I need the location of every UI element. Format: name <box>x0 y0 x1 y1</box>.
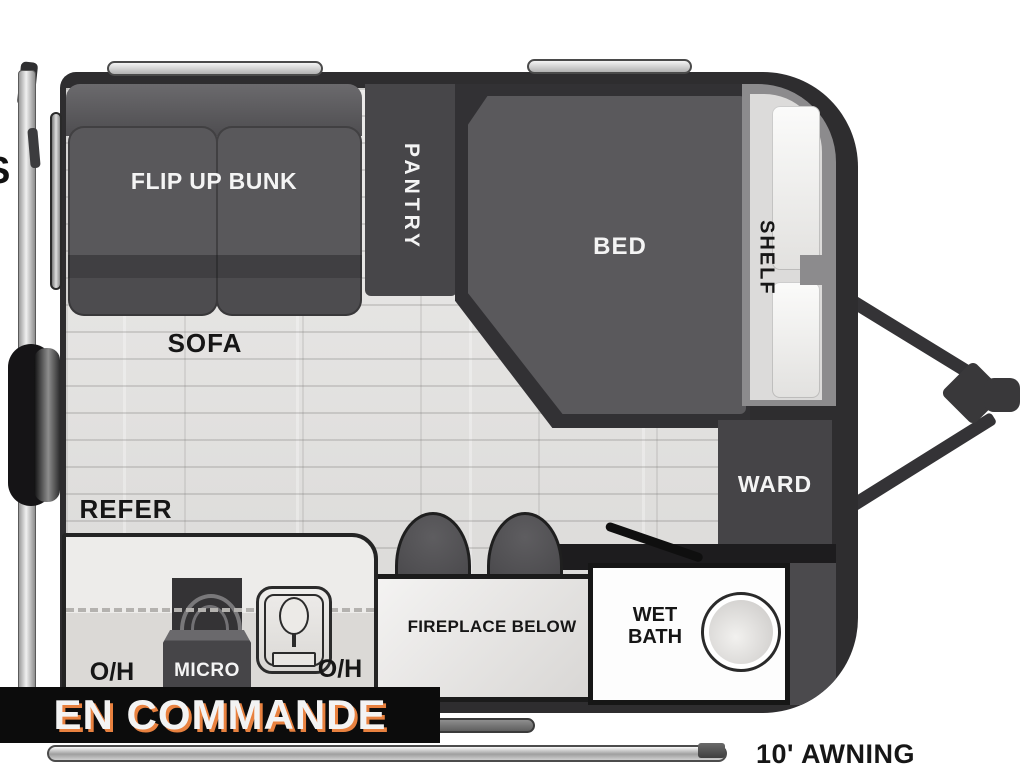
microwave-cabinet: MICRO <box>163 630 251 688</box>
status-banner: EN COMMANDE <box>0 687 440 743</box>
trailer-body: FLIP UP BUNK PANTRY BED SHELF WARD FIREP… <box>60 72 858 713</box>
toilet-icon <box>701 592 781 672</box>
bunk-cushion-left <box>68 126 218 316</box>
shelf-label: SHELF <box>754 190 778 326</box>
overhead-right-label: O/H <box>308 655 372 684</box>
micro-label: MICRO <box>163 660 251 682</box>
refer-label: REFER <box>74 494 178 525</box>
fireplace-label: FIREPLACE BELOW <box>377 617 607 637</box>
cropped-edge-letter: S <box>0 150 10 193</box>
wet-bath-room: WET BATH <box>588 563 790 705</box>
wet-bath-label: WET BATH <box>613 604 697 649</box>
pantry-label: PANTRY <box>390 117 432 277</box>
overhead-left-label: O/H <box>80 658 144 687</box>
hitch-coupler-knob <box>984 378 1020 412</box>
roof-rail-left <box>107 61 323 76</box>
status-banner-text: EN COMMANDE <box>54 691 387 739</box>
bunk-cushion-right <box>216 126 362 316</box>
sink-faucet <box>292 634 296 647</box>
fireplace-counter: FIREPLACE BELOW <box>372 574 612 702</box>
microwave-icon <box>172 578 242 632</box>
shelf-board-bottom <box>772 282 820 398</box>
roof-rail-right <box>527 59 692 74</box>
wet-bath-line2: BATH <box>628 626 682 648</box>
toilet-bowl <box>709 600 773 664</box>
rv-floorplan-image: FLIP UP BUNK PANTRY BED SHELF WARD FIREP… <box>0 0 1024 768</box>
grab-handle <box>50 112 62 290</box>
sofa-label: SOFA <box>145 328 265 359</box>
awning-rail <box>47 745 727 762</box>
shelf-board-top <box>772 106 820 270</box>
flip-up-bunk-label: FLIP UP BUNK <box>88 168 340 195</box>
rear-bumper-bracket <box>27 128 40 169</box>
wardrobe: WARD <box>718 420 832 548</box>
shelf-divider <box>800 255 822 285</box>
hitch-lower-bar <box>845 412 998 514</box>
awning-label: 10' AWNING <box>756 739 936 768</box>
spare-tire-sidewall <box>34 348 60 502</box>
wet-bath-line1: WET <box>633 604 677 626</box>
awning-rail-end-cap <box>698 743 725 758</box>
bed-label: BED <box>540 233 700 261</box>
sink-bowl <box>279 597 309 635</box>
ward-label: WARD <box>738 471 812 498</box>
bath-side-cabinet <box>788 563 836 705</box>
